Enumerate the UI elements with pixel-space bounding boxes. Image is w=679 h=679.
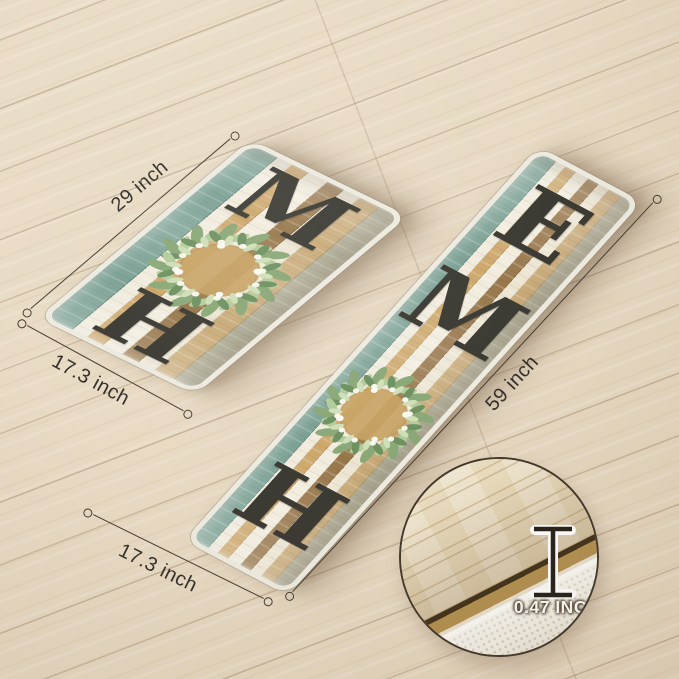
thickness-label: 0.47 INCH	[487, 597, 599, 618]
mat-letter-e: E	[485, 182, 601, 273]
thickness-inset-circle: 0.47 INCH	[399, 457, 599, 657]
product-photo-scene: H M E H M E 29 inch 1	[0, 0, 679, 679]
i-beam-measure-icon	[529, 523, 577, 601]
